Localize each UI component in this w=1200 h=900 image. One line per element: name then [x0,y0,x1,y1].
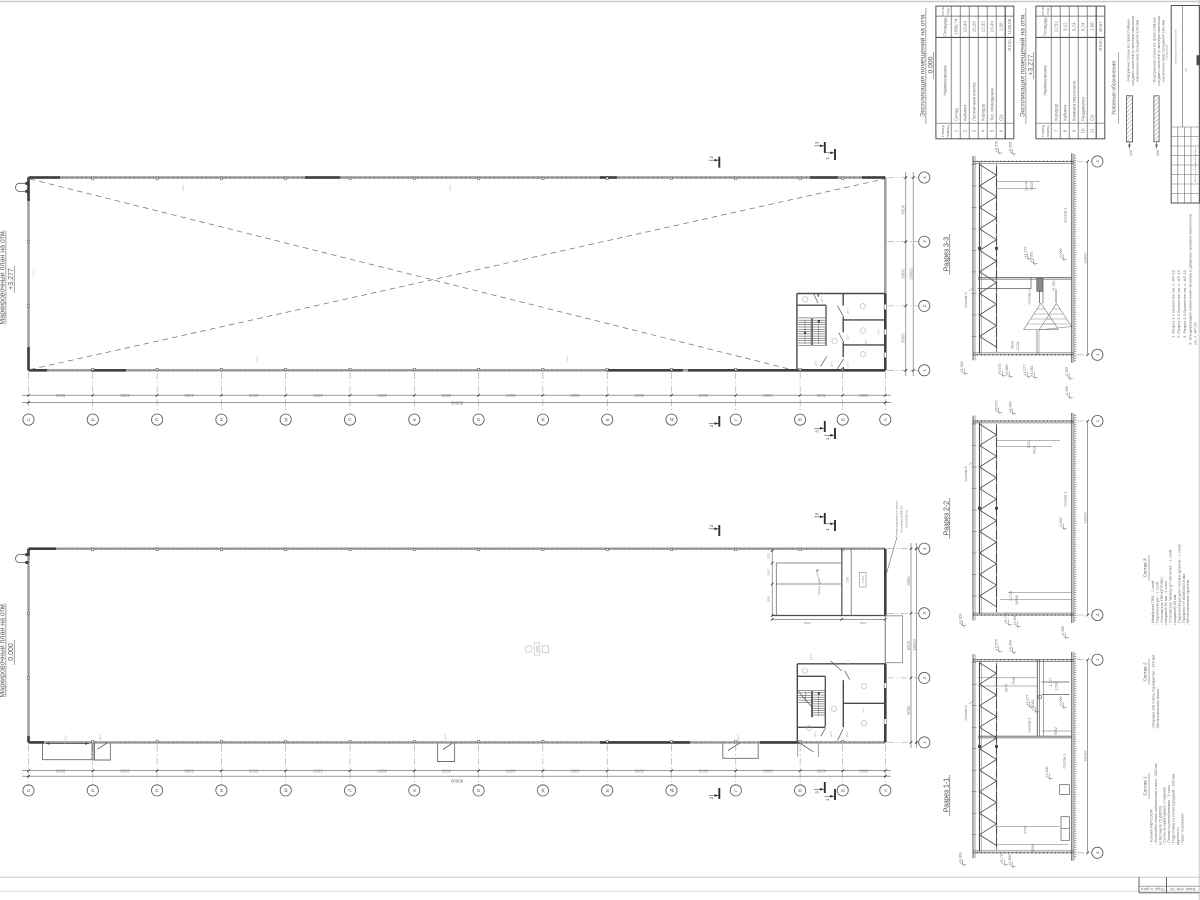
svg-text:80000: 80000 [450,778,463,783]
svg-text:-0.300: -0.300 [1065,367,1069,377]
svg-text:13,49: 13,49 [989,21,994,33]
svg-text:2740: 2740 [1023,826,1027,834]
svg-text:М: М [283,418,289,422]
svg-text:1500: 1500 [846,576,850,583]
svg-text:1.100: 1.100 [861,576,865,583]
svg-text:С: С [26,417,32,421]
svg-text:7540: 7540 [1012,677,1016,685]
svg-text:Дв-5: Дв-5 [845,731,849,737]
svg-text:В: В [798,418,804,421]
svg-text:С: С [26,788,32,792]
svg-text:Л: Л [348,418,354,421]
svg-text:6321: 6321 [1027,440,1031,448]
svg-text:Ж: Ж [541,417,547,422]
svg-text:-0.300: -0.300 [1065,386,1069,396]
svg-text:Дв-5: Дв-5 [814,360,818,366]
svg-text:Взам. инв. №: Взам. инв. № [1171,887,1196,892]
svg-text:Состав 1: Состав 1 [1143,776,1148,795]
svg-text:4000: 4000 [859,393,869,398]
svg-text:-0.300: -0.300 [1061,626,1065,636]
svg-text:4: 4 [1095,160,1101,163]
svg-text:Пандус: Пандус [63,734,67,744]
svg-text:Состав 3: Состав 3 [1143,558,1148,577]
svg-text:- Металлические прогоны: - Металлические прогоны [1186,579,1190,625]
svg-text:- Утеплитель Эковер (у=100 кг/: - Утеплитель Эковер (у=100 кг/м3, - 1 сл… [1169,550,1173,625]
svg-text:Состав 3: Состав 3 [964,293,968,308]
svg-text:6000: 6000 [377,769,387,774]
svg-text:Итого: Итого [1007,39,1012,51]
svg-text:1: 1 [922,369,928,372]
svg-text:1: 1 [1095,419,1101,422]
svg-text:люд.: люд. [946,7,950,14]
svg-text:+3.277: +3.277 [1027,54,1034,75]
svg-text:- Мембрана ПВХ - 1 слой: - Мембрана ПВХ - 1 слой [1151,581,1155,625]
svg-text:+6.360: +6.360 [1009,640,1013,651]
svg-text:Коридор: Коридор [980,103,985,121]
svg-text:4000: 4000 [816,769,826,774]
svg-text:6000: 6000 [505,769,515,774]
svg-text:Св-2: Св-2 [565,355,569,362]
svg-text:6000: 6000 [901,204,906,214]
svg-text:Дв-5: Дв-5 [820,296,824,302]
svg-text:Мойка 11.3: Мойка 11.3 [817,579,821,595]
svg-text:+5.770: +5.770 [1004,612,1008,623]
svg-text:2000: 2000 [767,569,771,576]
svg-text:Состав 2: Состав 2 [1028,290,1032,305]
svg-text:Наименование: Наименование [942,65,947,96]
svg-text:+9.360: +9.360 [959,613,963,624]
svg-text:Н: Н [219,417,225,421]
svg-text:- Грунт основания: - Грунт основания [1180,813,1184,845]
svg-text:Дв-1: Дв-1 [736,734,740,740]
svg-text:Согласовано: Согласовано [1165,44,1169,60]
svg-text:Состав 3: Состав 3 [964,706,968,721]
svg-text:12,52: 12,52 [1053,21,1058,33]
svg-text:Разрез 3-3: Разрез 3-3 [943,237,950,271]
svg-text:Номер: Номер [1041,125,1045,137]
svg-text:Дв-5: Дв-5 [846,361,850,367]
svg-text:6000: 6000 [313,393,323,398]
svg-text:- Пароизоляция - 1 слой: - Пароизоляция - 1 слой [1155,582,1159,625]
svg-text:Условные обозначения: Условные обозначения [1111,61,1117,115]
svg-text:6000: 6000 [55,769,65,774]
svg-text:12740: 12740 [1009,591,1013,601]
svg-text:18000: 18000 [1083,252,1088,264]
svg-text:К: К [412,418,418,421]
svg-text:6000: 6000 [906,576,911,586]
svg-text:8,74: 8,74 [1071,22,1076,31]
svg-text:6000: 6000 [377,393,387,398]
svg-text:4000: 4000 [859,769,869,774]
svg-text:- Пароизоляция для плоских кро: - Пароизоляция для плоских кровель - 1 с… [1177,545,1181,625]
svg-text:Кол-во: Кол-во [941,6,945,17]
svg-text:+5.770: +5.770 [1000,852,1004,863]
svg-text:Ок-4: Ок-4 [877,329,881,335]
svg-text:Св-2: Св-2 [255,355,259,362]
svg-text:Лестничная клетка: Лестничная клетка [971,82,976,121]
svg-text:Св-1: Св-1 [181,184,185,191]
svg-text:6000: 6000 [763,769,773,774]
svg-text:Состав 2: Состав 2 [1143,662,1148,681]
svg-text:1: 1 [1095,353,1101,356]
svg-text:Дв-5: Дв-5 [809,654,813,660]
svg-text:9,12: 9,12 [1062,22,1067,31]
svg-text:18000: 18000 [912,639,917,651]
svg-text:Итого: Итого [1098,39,1103,51]
svg-text:Б: Б [840,789,846,792]
svg-text:П: П [155,788,161,792]
svg-text:+3.277: +3.277 [1026,694,1030,705]
svg-text:6000: 6000 [901,268,906,278]
svg-text:+3.277: +3.277 [8,268,15,290]
svg-text:18000: 18000 [1083,750,1088,762]
svg-text:Экспликация помещений на отм.: Экспликация помещений на отм. [919,13,927,117]
svg-text:1: 1 [1095,658,1101,661]
svg-text:Л: Л [348,789,354,792]
svg-text:Герметизированные ворота: Герметизированные ворота [895,501,899,537]
svg-text:1.177: 1.177 [1049,678,1053,687]
svg-text:АР: АР [1184,68,1188,72]
svg-text:6000: 6000 [634,769,644,774]
svg-text:12,52: 12,52 [980,21,985,33]
svg-text:13,49: 13,49 [962,21,967,33]
svg-text:Ж: Ж [541,788,547,793]
svg-text:3: 3 [922,612,928,615]
svg-text:Номер: Номер [941,125,945,137]
svg-text:1,58: 1,58 [1089,22,1094,31]
svg-text:Экспликация помещений на отм.: Экспликация помещений на отм. [1019,13,1027,117]
svg-text:100: 100 [1156,150,1160,156]
svg-text:6500: 6500 [803,621,810,625]
svg-text:2850: 2850 [767,595,771,602]
svg-text:помещ.: помещ. [946,124,950,137]
svg-text:Дв-5: Дв-5 [846,334,850,340]
svg-text:Ок-1: Ок-1 [861,707,865,713]
svg-text:6000: 6000 [906,640,911,650]
svg-text:6000: 6000 [248,769,258,774]
svg-text:+1.051: +1.051 [1030,251,1034,262]
svg-text:крупности: крупности [1176,827,1180,845]
svg-text:18000: 18000 [1083,512,1088,524]
svg-text:Индивидуальный жилой дом: Индивидуальный жилой дом [1174,29,1178,64]
svg-text:6000: 6000 [763,393,773,398]
svg-text:Коридор: Коридор [1053,103,1058,121]
svg-text:К: К [412,789,418,792]
svg-text:+5.570: +5.570 [995,400,999,411]
svg-text:4000: 4000 [816,393,826,398]
svg-text:10: 10 [1080,128,1085,133]
svg-text:+6.360: +6.360 [1009,401,1013,412]
svg-text:6000: 6000 [55,393,65,398]
svg-text:1250: 1250 [767,553,771,560]
svg-text:120: 120 [1129,150,1133,156]
svg-text:1: 1 [922,741,928,744]
svg-text:18000: 18000 [909,268,914,280]
svg-text:П: П [155,417,161,421]
svg-text:2: 2 [922,304,928,307]
svg-text:- Пленка полиэтиленовая - 2: - Пленка полиэтиленовая - 2 слоя [1167,785,1171,845]
svg-text:6000: 6000 [634,393,644,398]
svg-text:4: 4 [922,547,928,550]
svg-text:Св-2: Св-2 [32,268,36,275]
svg-text:Изм.Кол.уч.Лист:№док.Подп.Дата: Изм.Кол.уч.Лист:№док.Подп.Дата [1194,147,1197,182]
svg-text:Площадь: Площадь [942,16,947,36]
svg-text:Состав 1: Состав 1 [1063,754,1067,769]
svg-text:- Железобетонная монолитная п: - Железобетонная монолитная плита - 200 … [1154,763,1158,845]
svg-text:помещ.: помещ. [1046,124,1050,137]
svg-text:Комната персонала: Комната персонала [1071,80,1076,121]
svg-text:В: В [798,789,804,792]
svg-text:9618: 9618 [1033,446,1037,454]
svg-text:+6.360: +6.360 [960,361,964,372]
svg-text:+1.200: +1.200 [1045,766,1049,777]
svg-text:(Конвейер) АЛЮТЕХ: (Конвейер) АЛЮТЕХ [900,505,904,532]
svg-text:толщиной) 50 мм: толщиной) 50 мм [1173,594,1177,625]
svg-text:6000: 6000 [441,393,451,398]
svg-text:Разрез 1-1: Разрез 1-1 [943,778,950,812]
svg-text:3: 3 [922,240,928,243]
svg-text:6000: 6000 [570,393,580,398]
svg-text:Кабинет: Кабинет [962,104,967,121]
svg-text:6000: 6000 [570,769,580,774]
svg-text:+4.500: +4.500 [1013,614,1017,625]
svg-text:6575: 6575 [1005,684,1009,692]
svg-text:+3.051: +3.051 [1031,699,1035,710]
svg-text:Е: Е [605,789,611,792]
svg-text:80000: 80000 [450,401,463,406]
svg-text:+6.360: +6.360 [1009,142,1013,153]
svg-text:Дв-3: Дв-3 [830,361,834,367]
svg-text:люд.: люд. [1046,7,1050,14]
svg-text:из бетона В 15 (М200): из бетона В 15 (М200) [1158,805,1162,845]
svg-text:+5.980: +5.980 [1005,364,1009,375]
svg-text:4: 4 [1095,613,1101,616]
svg-text:С/у: С/у [998,114,1003,121]
svg-text:4500: 4500 [859,621,866,625]
svg-text:М: М [283,788,289,792]
svg-text:6000: 6000 [441,769,451,774]
svg-text:- Подготовка из песка (средней: - Подготовка из песка (средней - 200 мм [1172,774,1176,845]
svg-text:0.000: 0.000 [1059,697,1063,706]
svg-text:6000: 6000 [184,393,194,398]
svg-text:Площадь: Площадь [1042,16,1047,36]
svg-text:6000: 6000 [505,393,515,398]
svg-text:1,58: 1,58 [998,22,1003,31]
svg-text:- Сборные ж/б плиты перекрытия: - Сборные ж/б плиты перекрытия - 220 мм [1152,655,1156,730]
svg-text:9610: 9610 [1011,341,1015,349]
svg-text:0.000: 0.000 [1059,518,1063,527]
svg-text:2500х3480 (h): 2500х3480 (h) [905,510,909,528]
svg-text:0.000: 0.000 [1059,249,1063,258]
svg-text:1138,08: 1138,08 [1007,18,1012,34]
svg-text:+5.570: +5.570 [995,141,999,152]
svg-text:2: 2 [922,676,928,679]
svg-text:- Топпинг REFLOOR: - Топпинг REFLOOR [1150,809,1154,845]
svg-text:Св-1: Св-1 [448,184,452,191]
svg-text:Состав 2: Состав 2 [1028,718,1032,733]
svg-text:6000: 6000 [901,333,906,343]
svg-text:Е: Е [605,418,611,421]
svg-text:Дв-5: Дв-5 [829,731,833,737]
svg-text:Р: Р [90,418,96,421]
svg-text:Разрез 2-2: Разрез 2-2 [943,501,950,535]
svg-text:Дв-4: Дв-4 [864,339,868,345]
svg-text:6000: 6000 [906,705,911,715]
svg-text:6000: 6000 [184,769,194,774]
svg-text:Состав 3: Состав 3 [964,467,968,482]
svg-text:1.528: 1.528 [1055,682,1059,691]
svg-text:+4.782: +4.782 [1052,280,1056,291]
svg-text:Раздевалка: Раздевалка [1080,97,1085,121]
svg-text:Г: Г [733,418,739,421]
svg-text:3. Разрез 3-3 Выполнен см. л.: 3. Разрез 3-3 Выполнен см. л. АР-13 [1182,269,1187,338]
svg-text:6000: 6000 [313,769,323,774]
svg-text:16,26: 16,26 [971,21,976,33]
svg-text:Состав 1: Состав 1 [1064,208,1068,223]
svg-text:- Металлическая балка: - Металлическая балка [1156,688,1160,730]
svg-text:0.000: 0.000 [927,56,934,73]
svg-text:Наименование: Наименование [1042,65,1047,96]
svg-text:40,67: 40,67 [1098,21,1103,33]
svg-text:+5.570: +5.570 [995,639,999,650]
svg-text:12740: 12740 [1025,181,1029,191]
svg-text:см. л. АР-14: см. л. АР-14 [1193,322,1198,345]
svg-text:+9.360: +9.360 [959,852,963,863]
svg-text:Дв-5: Дв-5 [846,308,850,314]
svg-text:Дв-1: Дв-1 [98,734,102,740]
svg-text:1. Разрез 1-1 Выполнен см. л.: 1. Разрез 1-1 Выполнен см. л. АР-13 [1171,269,1176,338]
svg-text:6000: 6000 [698,393,708,398]
svg-text:Дв-5: Дв-5 [846,660,850,666]
svg-text:11: 11 [1089,128,1094,133]
svg-text:6000: 6000 [698,769,708,774]
svg-text:Состав 1: Состав 1 [1064,492,1068,507]
svg-text:0000: 0000 [535,645,539,652]
svg-text:Н: Н [219,788,225,792]
svg-text:толщиной 50 мм - 2 слоя: толщиной 50 мм - 2 слоя [1164,581,1168,625]
svg-text:6000: 6000 [120,393,130,398]
svg-text:Кабинет: Кабинет [1062,104,1067,121]
svg-text:10569: 10569 [1015,595,1019,605]
svg-text:+1.051: +1.051 [1030,365,1034,376]
svg-text:4: 4 [922,176,928,179]
svg-text:0.000: 0.000 [8,643,15,661]
svg-text:Дв-2: Дв-2 [443,734,447,740]
svg-text:Маркировочный план на отм.: Маркировочный план на отм. [0,602,7,697]
svg-text:+1.277: +1.277 [1024,246,1028,257]
svg-text:Кол-во: Кол-во [1041,6,1045,17]
svg-text:Р: Р [90,789,96,792]
svg-text:6962: 6962 [1054,727,1058,735]
svg-text:+5.570: +5.570 [998,363,1002,374]
svg-text:Маркировочный план на отм.: Маркировочный план на отм. [0,229,7,324]
svg-text:1080,74: 1080,74 [953,18,958,34]
svg-text:+4.500: +4.500 [1008,854,1012,865]
svg-text:- Сетка из арматурных стержней: - Сетка из арматурных стержней [1163,787,1167,845]
svg-text:+1.277: +1.277 [1023,364,1027,375]
svg-text:Б: Б [840,418,846,421]
svg-text:Г: Г [733,789,739,792]
svg-text:6000: 6000 [120,769,130,774]
svg-text:Дв-3: Дв-3 [813,731,817,737]
svg-text:8560: 8560 [1031,844,1035,852]
svg-text:наполнителем) толщиной 120 мм: наполнителем) толщиной 120 мм [1135,20,1140,82]
svg-text:- Профлист Н 60х845х0.8 мм: - Профлист Н 60х845х0.8 мм [1182,574,1186,625]
svg-text:С/у: С/у [1089,114,1094,121]
svg-text:9610: 9610 [1030,182,1034,190]
svg-text:6000: 6000 [248,393,258,398]
svg-text:4: 4 [1095,851,1101,854]
svg-text:8,74: 8,74 [1080,22,1085,31]
svg-text:- Утеплитель ПЕНОПЛЭКС,: - Утеплитель ПЕНОПЛЭКС, [1160,576,1164,625]
svg-text:И: И [476,417,482,421]
svg-text:12111: 12111 [1016,341,1020,350]
svg-text:Подп. и дата: Подп. и дата [1140,887,1164,892]
svg-text:И: И [476,788,482,792]
svg-text:Склад: Склад [953,108,958,121]
svg-text:Тех. помещение: Тех. помещение [989,87,994,121]
svg-text:2. Разрез 2-2 Выполнен см. л.: 2. Разрез 2-2 Выполнен см. л. АР-13 [1176,269,1181,338]
